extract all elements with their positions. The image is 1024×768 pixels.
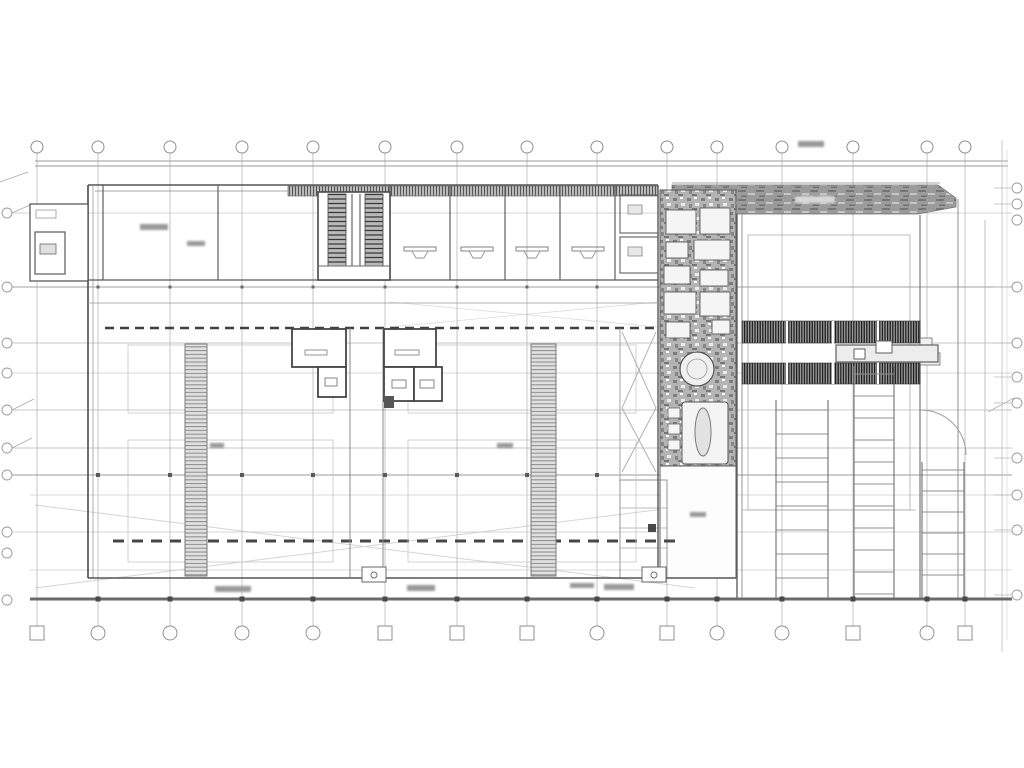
grid-bubble-left: [2, 405, 12, 415]
grid-bubble-left: [2, 208, 12, 218]
service-room: [666, 322, 690, 338]
storage-rack: [185, 344, 207, 576]
column: [311, 597, 316, 602]
grid-bubble-left: [2, 595, 12, 605]
grid-bubble-right: [1012, 590, 1022, 600]
grid-bubble-right: [1012, 490, 1022, 500]
column: [925, 597, 930, 602]
column: [169, 286, 172, 289]
service-room: [700, 292, 730, 316]
service-room: [700, 270, 728, 286]
service-room: [666, 210, 696, 234]
grid-bubble-top: [921, 141, 933, 153]
grid-bubble-bottom: [450, 626, 464, 640]
column: [963, 597, 968, 602]
column: [596, 286, 599, 289]
table-leg: [524, 251, 540, 258]
corner-room-mark: [648, 524, 656, 532]
grid-bubble-top: [776, 141, 788, 153]
grid-bubble-bottom: [846, 626, 860, 640]
grid-bubble-left: [2, 368, 12, 378]
tank: [680, 352, 714, 386]
mezzanine-room: [318, 367, 346, 397]
note-smudge: [690, 512, 706, 517]
grid-bubble-bottom: [30, 626, 44, 640]
note-smudge: [407, 585, 435, 591]
grid-bubble-right: [1012, 453, 1022, 463]
grid-bubble-right: [1012, 525, 1022, 535]
column: [525, 473, 529, 477]
plan-root: [0, 140, 1022, 652]
column: [525, 597, 530, 602]
column: [96, 597, 101, 602]
grid-bubble-bottom: [235, 626, 249, 640]
stair-flight: [365, 194, 383, 266]
table-leg: [412, 251, 428, 258]
grid-bubble-bottom: [590, 626, 604, 640]
grid-bubble-left: [2, 443, 12, 453]
service-room: [664, 292, 696, 314]
note-smudge: [215, 586, 251, 592]
grid-bubble-bottom: [958, 626, 972, 640]
grid-bubble-top: [661, 141, 673, 153]
storage-rack: [531, 344, 556, 576]
column: [311, 473, 315, 477]
note-smudge: [604, 584, 634, 590]
column: [383, 473, 387, 477]
service-room: [694, 240, 730, 260]
truck-cab: [854, 349, 865, 359]
grid-bubble-top: [959, 141, 971, 153]
column: [383, 597, 388, 602]
grid-bubble-top: [847, 141, 859, 153]
grid-bubble-right: [1012, 398, 1022, 408]
column: [455, 597, 460, 602]
column: [96, 473, 100, 477]
grid-bubble-left: [2, 338, 12, 348]
dock-grate: [742, 363, 920, 384]
column: [665, 597, 670, 602]
grid-bubble-top: [711, 141, 723, 153]
fixture: [628, 205, 642, 214]
note-smudge: [570, 583, 594, 588]
grid-bubble-right: [1012, 338, 1022, 348]
grid-bubble-bottom: [660, 626, 674, 640]
truck-notch: [876, 341, 892, 353]
table-leg: [469, 251, 485, 258]
column: [97, 286, 100, 289]
service-fixture: [668, 408, 680, 418]
grid-bubble-bottom: [775, 626, 789, 640]
grid-bubble-top: [164, 141, 176, 153]
grid-bubble-top: [307, 141, 319, 153]
column: [456, 286, 459, 289]
table: [461, 247, 493, 251]
column: [384, 286, 387, 289]
leader-line: [12, 204, 32, 213]
grid-bubble-right: [1012, 199, 1022, 209]
service-room: [664, 266, 690, 284]
column: [168, 597, 173, 602]
dimension-text-smudge: [798, 141, 824, 147]
grid-bubble-bottom: [520, 626, 534, 640]
grid-bubble-bottom: [163, 626, 177, 640]
leader-line: [0, 172, 28, 182]
hall-zone: [408, 440, 636, 562]
service-fixture: [668, 424, 680, 434]
column: [241, 286, 244, 289]
service-fixture: [668, 440, 680, 450]
hall-label-smudge: [497, 443, 513, 448]
grid-bubble-left: [2, 548, 12, 558]
mezzanine-room: [384, 329, 436, 367]
grid-bubble-bottom: [378, 626, 392, 640]
column: [715, 597, 720, 602]
column: [595, 597, 600, 602]
fixture: [628, 247, 642, 256]
grid-bubble-left: [2, 282, 12, 292]
grid-bubble-bottom: [91, 626, 105, 640]
column: [240, 473, 244, 477]
mezzanine-room: [292, 329, 346, 367]
stair-flight: [328, 194, 346, 266]
mezzanine-room: [384, 367, 414, 401]
column: [312, 286, 315, 289]
grid-bubble-bottom: [306, 626, 320, 640]
entrance-porch: [362, 567, 386, 582]
grid-bubble-left: [2, 527, 12, 537]
room-label-smudge: [140, 224, 168, 230]
canopy-label-smudge: [795, 196, 835, 203]
column: [851, 597, 856, 602]
table-leg: [580, 251, 596, 258]
grid-bubble-top: [236, 141, 248, 153]
grid-bubble-right: [1012, 183, 1022, 193]
shaft: [384, 396, 394, 408]
leader-line: [12, 399, 34, 410]
service-room: [700, 208, 730, 234]
grid-bubble-bottom: [710, 626, 724, 640]
grid-bubble-top: [379, 141, 391, 153]
grid-bubble-left: [2, 470, 12, 480]
grid-bubble-top: [451, 141, 463, 153]
dock-grate: [742, 321, 920, 343]
hall-zone: [128, 440, 333, 562]
column: [526, 286, 529, 289]
table: [404, 247, 436, 251]
column: [455, 473, 459, 477]
grid-bubble-right: [1012, 282, 1022, 292]
equipment-unit: [695, 408, 711, 456]
column: [240, 597, 245, 602]
service-room: [666, 242, 688, 258]
room-label-smudge: [187, 241, 205, 246]
grid-bubble-right: [1012, 215, 1022, 225]
column: [595, 473, 599, 477]
grid-bubble-top: [591, 141, 603, 153]
leader-line: [12, 438, 32, 448]
grid-bubble-top: [31, 141, 43, 153]
hall-label-smudge: [210, 443, 224, 448]
table: [516, 247, 548, 251]
column: [780, 597, 785, 602]
entrance-porch: [642, 567, 666, 582]
west-annex: [30, 204, 88, 281]
service-room: [712, 320, 730, 334]
mezzanine-room: [414, 367, 442, 401]
table: [572, 247, 604, 251]
grid-bubble-top: [92, 141, 104, 153]
floor-plan-page: [0, 0, 1024, 768]
floor-plan-drawing: [0, 0, 1024, 768]
service-room-lower: [660, 466, 736, 578]
column: [168, 473, 172, 477]
grid-bubble-top: [521, 141, 533, 153]
annex-fixture: [40, 244, 56, 254]
grid-bubble-right: [1012, 372, 1022, 382]
grid-bubble-bottom: [920, 626, 934, 640]
